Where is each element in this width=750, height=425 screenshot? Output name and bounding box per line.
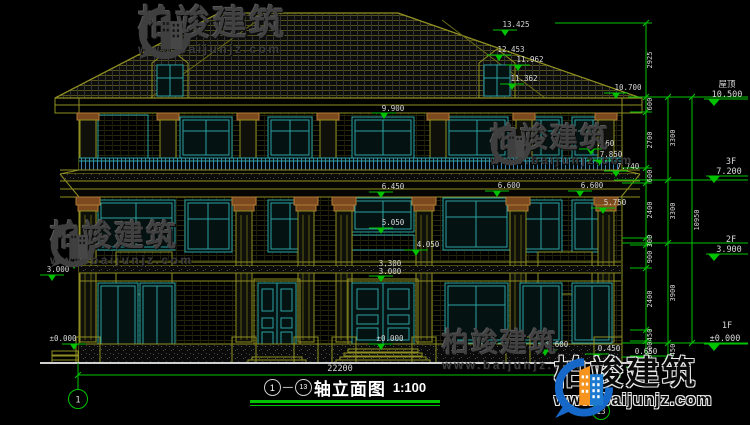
- axis-number-left: 1: [75, 396, 80, 406]
- dim-chain-value: 2700: [646, 132, 654, 149]
- level-name: 1F: [722, 321, 732, 331]
- spot-elevation-label: 11.362: [510, 74, 537, 83]
- dim-total-value: 10950: [693, 209, 701, 230]
- drawing-title-block: 1 — 13 轴立面图 1:100: [250, 377, 440, 406]
- dim-chain-value: 450: [646, 355, 654, 368]
- cad-elevation-screenshot: 13.425 12.453 11.962 11.362 10.700 9.900…: [0, 0, 750, 425]
- spot-elevation-label: 4.050: [417, 240, 440, 249]
- spot-elevation-label: 9.900: [382, 104, 405, 113]
- dim-chain-value: 900: [646, 251, 654, 264]
- spot-elevation-label: 12.453: [497, 45, 524, 54]
- second-floor-band: [60, 170, 640, 197]
- dim-chain-value: 3300: [669, 203, 677, 220]
- spot-elevation-label: 11.962: [516, 55, 543, 64]
- title-underline-thick: [250, 400, 440, 403]
- spot-elevation-label: 10.700: [614, 83, 642, 92]
- building-facade: [40, 13, 658, 363]
- level-elevation: 10.500: [712, 90, 743, 100]
- spot-elevation-label: 5.050: [382, 218, 405, 227]
- dim-chain-value: 600: [646, 170, 654, 183]
- spot-elevation-label: ±0.000: [49, 334, 77, 343]
- spot-elevation-label: 7.740: [617, 162, 640, 171]
- level-elevation: 7.200: [716, 167, 742, 177]
- spot-elevation-label: 3.000: [379, 267, 402, 276]
- axis-number-right: 13: [596, 407, 605, 416]
- level-elevation: 3.900: [716, 245, 742, 255]
- eave-band: [55, 98, 642, 113]
- spot-elevation-label: 7.850: [600, 150, 623, 159]
- title-underline-thin: [250, 405, 440, 406]
- dim-chain-value: 2400: [646, 291, 654, 308]
- dim-chain-value: 450: [669, 344, 677, 357]
- level-name: 3F: [726, 157, 736, 167]
- spot-elevation-label: 0.450: [598, 344, 621, 353]
- spot-elevation-label: ±0.000: [376, 334, 404, 343]
- title-axis-bubble-end: 13: [295, 379, 312, 396]
- spot-elevation-label: 6.450: [382, 182, 405, 191]
- spot-elevation-label: 0.600: [546, 340, 569, 349]
- spot-elevation-label: 13.425: [502, 20, 529, 29]
- level-markers: [704, 99, 748, 351]
- spot-elevation-label: 6.600: [498, 181, 521, 190]
- dim-chain-value: 3300: [669, 130, 677, 147]
- balcony-railing: [79, 158, 621, 170]
- drawing-title: 轴立面图: [314, 375, 386, 400]
- spot-elevation-label: 6.600: [581, 181, 604, 190]
- spot-elevation-label: 3.000: [47, 265, 70, 274]
- dim-chain-value: 2400: [646, 202, 654, 219]
- spot-elevation-label: 8.360: [592, 139, 615, 148]
- spot-elevation-label: 3.450: [69, 253, 92, 262]
- drawing-scale: 1:100: [393, 380, 426, 395]
- elevation-drawing: 13.425 12.453 11.962 11.362 10.700 9.900…: [0, 0, 750, 425]
- dim-chain-value: 600: [646, 342, 654, 355]
- overall-width-label: 22200: [327, 364, 353, 374]
- dim-chain-value: 300: [646, 235, 654, 248]
- title-axis-dash: —: [283, 382, 293, 393]
- title-axis-bubble-start: 1: [264, 379, 281, 396]
- level-elevation: ±0.000: [710, 334, 741, 344]
- spot-elevation-label: 5.750: [604, 198, 627, 207]
- dim-chain-value: 2925: [646, 52, 654, 69]
- level-name: 屋顶: [718, 80, 736, 90]
- roof: [55, 13, 641, 98]
- level-name: 2F: [726, 235, 736, 245]
- dim-chain-value: 450: [646, 329, 654, 342]
- dim-chain-value: 3900: [669, 285, 677, 302]
- dim-chain-value: 600: [646, 98, 654, 111]
